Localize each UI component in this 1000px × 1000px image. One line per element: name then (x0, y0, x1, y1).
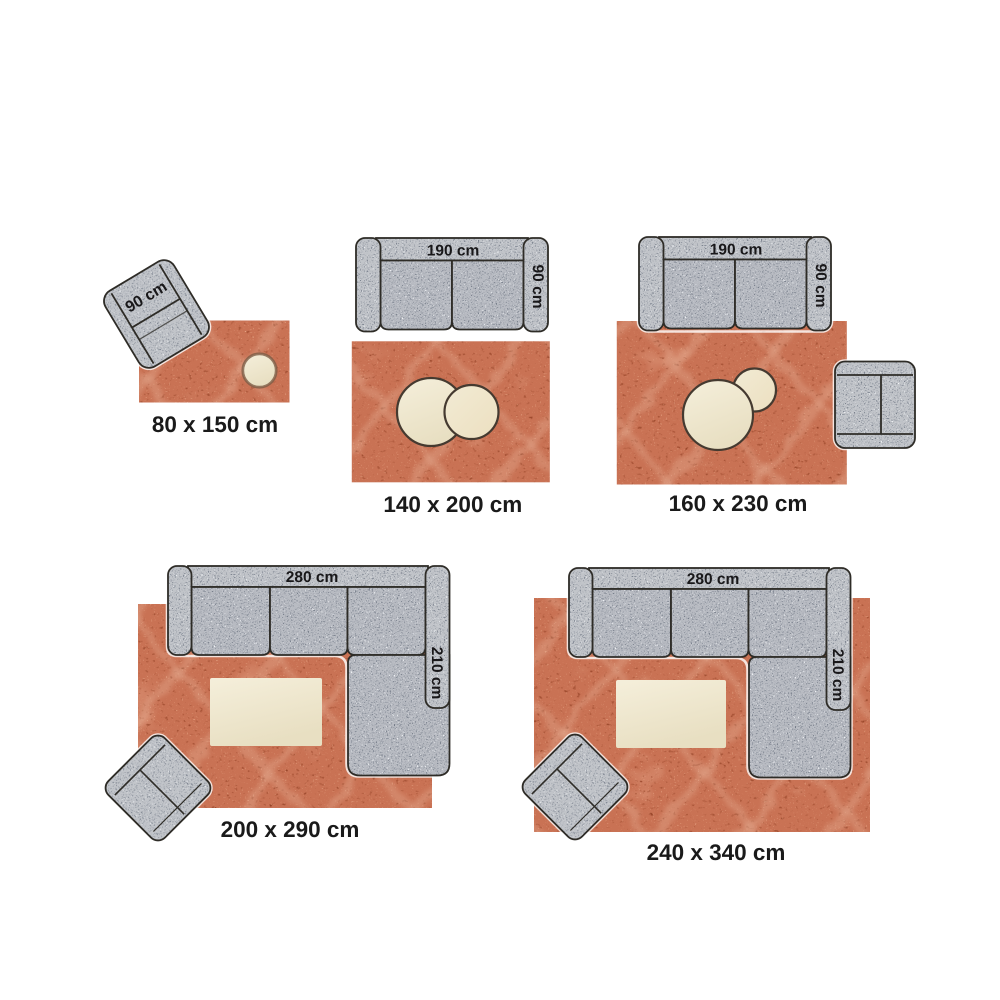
svg-text:140 x 200 cm: 140 x 200 cm (383, 492, 522, 517)
svg-text:80 x 150 cm: 80 x 150 cm (152, 412, 278, 437)
svg-text:200 x 290 cm: 200 x 290 cm (221, 817, 360, 842)
svg-text:90 cm: 90 cm (529, 265, 546, 309)
svg-text:90 cm: 90 cm (812, 264, 829, 308)
svg-text:210 cm: 210 cm (428, 647, 445, 700)
svg-text:280 cm: 280 cm (687, 571, 740, 588)
svg-text:190 cm: 190 cm (427, 243, 480, 260)
svg-text:160 x 230 cm: 160 x 230 cm (669, 491, 808, 516)
svg-text:190 cm: 190 cm (710, 242, 763, 259)
svg-text:240 x 340 cm: 240 x 340 cm (647, 840, 786, 865)
svg-text:210 cm: 210 cm (829, 649, 846, 702)
svg-text:280 cm: 280 cm (286, 569, 339, 586)
